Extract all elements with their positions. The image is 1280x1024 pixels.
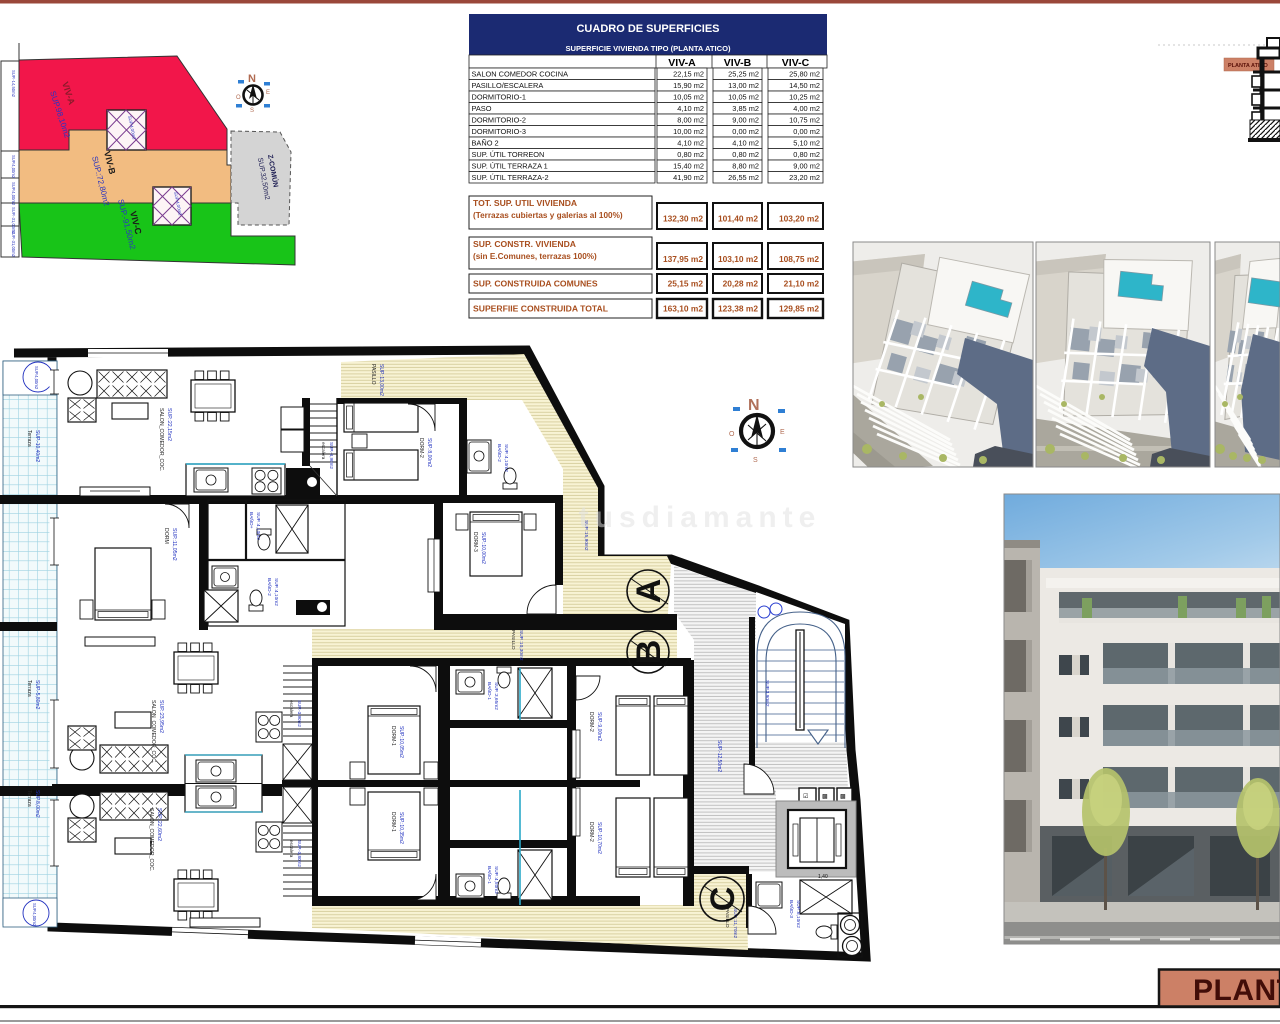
svg-text:25,15 m2: 25,15 m2: [668, 279, 704, 289]
svg-text:PASILLO/ESCALERA: PASILLO/ESCALERA: [472, 81, 544, 90]
svg-text:N: N: [748, 397, 760, 414]
svg-text:108,75 m2: 108,75 m2: [779, 254, 819, 264]
svg-text:BAÑO 2: BAÑO 2: [472, 139, 499, 148]
svg-text:SUP.:10,00m2: SUP.:10,00m2: [480, 532, 486, 564]
svg-text:SUP. ÚTIL TERRAZA 1: SUP. ÚTIL TERRAZA 1: [472, 162, 548, 171]
svg-text:SUP. CONSTRUIDA COMUNES: SUP. CONSTRUIDA COMUNES: [473, 279, 598, 289]
svg-text:41,90 m2: 41,90 m2: [673, 173, 704, 182]
svg-text:SUP. ÚTIL TERRAZA-2: SUP. ÚTIL TERRAZA-2: [472, 173, 549, 182]
svg-text:SUP.:6,10m2: SUP.:6,10m2: [795, 900, 801, 928]
svg-text:SUP. CONSTR. VIVIENDA: SUP. CONSTR. VIVIENDA: [473, 239, 576, 249]
svg-text:4,10 m2: 4,10 m2: [677, 139, 704, 148]
svg-text:3,85 m2: 3,85 m2: [732, 104, 759, 113]
svg-text:15,40 m2: 15,40 m2: [673, 162, 704, 171]
svg-text:TOT. SUP. UTIL VIVIENDA: TOT. SUP. UTIL VIVIENDA: [473, 198, 577, 208]
svg-text:14,50 m2: 14,50 m2: [789, 81, 820, 90]
svg-text:SUP.:10,30m2: SUP.:10,30m2: [518, 630, 524, 661]
svg-text:SUP.:9,00m2: SUP.:9,00m2: [596, 712, 602, 741]
svg-text:SUP.:22,60m2: SUP.:22,60m2: [156, 808, 162, 841]
svg-text:20,28 m2: 20,28 m2: [723, 279, 759, 289]
svg-text:DORM-3: DORM-3: [472, 532, 478, 552]
svg-text:10,05 m2: 10,05 m2: [728, 93, 759, 102]
svg-text:0,00 m2: 0,00 m2: [732, 127, 759, 136]
svg-text:PASILLO: PASILLO: [510, 630, 516, 650]
svg-text:163,10 m2: 163,10 m2: [663, 304, 703, 314]
svg-text:Terraza: Terraza: [26, 680, 32, 697]
svg-text:DORM-2: DORM-2: [418, 438, 424, 458]
svg-text:SUP.:8,00m2: SUP.:8,00m2: [426, 438, 432, 467]
svg-text:SUP.:4,10m2: SUP.:4,10m2: [255, 512, 261, 540]
svg-text:25,80 m2: 25,80 m2: [789, 70, 820, 79]
svg-text:S: S: [753, 457, 758, 464]
svg-text:(sin E.Comunes, terrazas 100%): (sin E.Comunes, terrazas 100%): [473, 252, 597, 261]
svg-text:22,15 m2: 22,15 m2: [673, 70, 704, 79]
svg-text:SUP.:4,10m2: SUP.:4,10m2: [273, 578, 279, 606]
svg-text:21,10 m2: 21,10 m2: [784, 279, 820, 289]
svg-text:SUPERFIIE CONSTRUIDA TOTAL: SUPERFIIE CONSTRUIDA TOTAL: [473, 304, 608, 314]
svg-text:SUP.-14,50m2: SUP.-14,50m2: [11, 70, 16, 98]
svg-text:SUP.:10,70m2: SUP.:10,70m2: [596, 822, 602, 854]
svg-text:SUP.4,00m2: SUP.4,00m2: [34, 366, 39, 390]
svg-text:SUP.:13,00m2: SUP.:13,00m2: [378, 364, 384, 396]
svg-text:SUP.-12,50m2: SUP.-12,50m2: [716, 740, 722, 772]
svg-text:10,00 m2: 10,00 m2: [673, 127, 704, 136]
svg-text:8,00 m2: 8,00 m2: [677, 116, 704, 125]
svg-text:VIV-A: VIV-A: [668, 57, 696, 69]
svg-text:SUP.8,00m2: SUP.8,00m2: [34, 790, 40, 818]
svg-text:23,20 m2: 23,20 m2: [789, 173, 820, 182]
svg-text:SUP.-3,90m2: SUP.-3,90m2: [329, 442, 334, 469]
svg-text:DORMITORIO-3: DORMITORIO-3: [472, 127, 526, 136]
svg-text:SUP.:11,70m2: SUP.:11,70m2: [732, 908, 738, 939]
svg-text:SUP.-5,80m2: SUP.-5,80m2: [34, 680, 40, 710]
svg-text:CUADRO DE SUPERFICIES: CUADRO DE SUPERFICIES: [576, 23, 719, 35]
svg-text:SUP.:23,95m2: SUP.:23,95m2: [158, 700, 164, 733]
svg-text:DORM-1: DORM-1: [390, 812, 396, 832]
svg-text:escalera: escalera: [289, 840, 294, 858]
svg-text:SUP. ÚTIL TORREON: SUP. ÚTIL TORREON: [472, 150, 545, 159]
svg-text:SUP.4,00m2: SUP.4,00m2: [11, 182, 16, 206]
svg-text:25,25 m2: 25,25 m2: [728, 70, 759, 79]
svg-text:DORM: DORM: [163, 528, 169, 544]
svg-text:BAÑO+: BAÑO+: [248, 512, 255, 529]
svg-text:4,00 m2: 4,00 m2: [793, 104, 820, 113]
svg-text:SUP.:3,65m2: SUP.:3,65m2: [493, 682, 499, 710]
svg-text:SUP.:10,35m2: SUP.:10,35m2: [398, 812, 404, 844]
svg-text:0,80 m2: 0,80 m2: [793, 150, 820, 159]
svg-text:S: S: [250, 108, 254, 114]
svg-text:PLANTA: PLANTA: [1193, 974, 1280, 1007]
svg-text:132,30 m2: 132,30 m2: [663, 214, 703, 224]
svg-text:PASILLO: PASILLO: [370, 364, 376, 385]
svg-text:9,00 m2: 9,00 m2: [732, 116, 759, 125]
svg-text:123,38 m2: 123,38 m2: [718, 304, 758, 314]
svg-text:SUP.-31,00m2: SUP.-31,00m2: [11, 230, 16, 258]
svg-text:103,10 m2: 103,10 m2: [718, 254, 758, 264]
svg-text:BAÑO-2: BAÑO-2: [266, 578, 273, 596]
svg-text:8,80 m2: 8,80 m2: [732, 162, 759, 171]
svg-text:SUP.:10,05m2: SUP.:10,05m2: [398, 726, 404, 758]
svg-text:0,80 m2: 0,80 m2: [677, 150, 704, 159]
svg-text:SUP.:11,05m2: SUP.:11,05m2: [171, 528, 177, 561]
svg-text:N: N: [248, 73, 256, 85]
svg-text:SUP.-10,40m2: SUP.-10,40m2: [34, 430, 40, 462]
svg-text:DORM-2: DORM-2: [588, 712, 594, 732]
svg-text:SUP.3,90m2: SUP.3,90m2: [764, 680, 770, 707]
svg-text:DORMITORIO-2: DORMITORIO-2: [472, 116, 526, 125]
svg-text:13,00 m2: 13,00 m2: [728, 81, 759, 90]
svg-text:BAÑO-3: BAÑO-3: [788, 900, 795, 918]
svg-text:tusdiamante: tusdiamante: [579, 501, 822, 534]
svg-text:BAÑO-1: BAÑO-1: [486, 682, 493, 700]
svg-text:SUP.-3,90m2: SUP.-3,90m2: [297, 700, 302, 727]
svg-text:4,10 m2: 4,10 m2: [677, 104, 704, 113]
svg-text:137,95 m2: 137,95 m2: [663, 254, 703, 264]
svg-text:SUP.:4,10m2: SUP.:4,10m2: [503, 444, 509, 472]
svg-text:4,10 m2: 4,10 m2: [732, 139, 759, 148]
svg-text:BAÑO-1: BAÑO-1: [486, 866, 493, 884]
svg-text:DORM-1: DORM-1: [390, 726, 396, 746]
svg-text:▩: ▩: [822, 794, 828, 800]
svg-text:VIV-B: VIV-B: [724, 57, 752, 69]
svg-text:SALON_COMEDOR_COC.: SALON_COMEDOR_COC.: [148, 808, 154, 871]
svg-text:SUPERFICIE VIVIENDA TIPO (PLA: SUPERFICIE VIVIENDA TIPO (PLANTA ATICO): [565, 44, 731, 53]
svg-text:BAÑO-2: BAÑO-2: [496, 444, 503, 462]
svg-text:15,90 m2: 15,90 m2: [673, 81, 704, 90]
svg-text:PASO: PASO: [472, 104, 492, 113]
svg-text:DORM-2: DORM-2: [588, 822, 594, 842]
svg-text:Terraza: Terraza: [26, 430, 32, 447]
svg-text:0,00 m2: 0,00 m2: [793, 127, 820, 136]
svg-text:E: E: [266, 90, 270, 96]
svg-text:escalera: escalera: [289, 700, 294, 718]
svg-text:10,05 m2: 10,05 m2: [673, 93, 704, 102]
svg-text:B: B: [630, 640, 668, 665]
svg-text:O: O: [236, 95, 241, 101]
svg-text:Terraza: Terraza: [26, 790, 32, 807]
svg-text:9,00 m2: 9,00 m2: [793, 162, 820, 171]
svg-text:☑: ☑: [803, 793, 808, 800]
svg-text:VIV-C: VIV-C: [782, 57, 810, 69]
svg-text:0,80 m2: 0,80 m2: [732, 150, 759, 159]
svg-text:E: E: [780, 429, 785, 436]
svg-text:SUP.4,00m2: SUP.4,00m2: [11, 155, 16, 179]
svg-text:1,40: 1,40: [818, 874, 828, 880]
svg-text:5,10 m2: 5,10 m2: [793, 139, 820, 148]
svg-text:SUP.4,00m2: SUP.4,00m2: [32, 903, 37, 927]
svg-text:SALON_COMEDOR_COC.: SALON_COMEDOR_COC.: [158, 408, 164, 471]
svg-text:O: O: [729, 431, 735, 438]
svg-text:SUP.:4,50m2: SUP.:4,50m2: [493, 866, 499, 894]
svg-text:26,55 m2: 26,55 m2: [728, 173, 759, 182]
svg-text:DORMITORIO-1: DORMITORIO-1: [472, 93, 526, 102]
svg-text:129,85 m2: 129,85 m2: [779, 304, 819, 314]
svg-text:103,20 m2: 103,20 m2: [779, 214, 819, 224]
svg-text:SUP.-3,80m2: SUP.-3,80m2: [297, 840, 302, 867]
svg-text:(Terrazas cubiertas y galerias: (Terrazas cubiertas y galerias al 100%): [473, 211, 623, 220]
svg-text:SALON COMEDOR COCINA: SALON COMEDOR COCINA: [472, 70, 569, 79]
svg-text:101,40 m2: 101,40 m2: [718, 214, 758, 224]
svg-text:10,25 m2: 10,25 m2: [789, 93, 820, 102]
svg-text:▩: ▩: [840, 794, 846, 800]
svg-text:10,75 m2: 10,75 m2: [789, 116, 820, 125]
svg-text:escalera: escalera: [321, 442, 326, 460]
svg-text:SUP.:22,15m2: SUP.:22,15m2: [166, 408, 172, 441]
svg-text:SALON_COMEDOR_COC.: SALON_COMEDOR_COC.: [150, 700, 156, 763]
